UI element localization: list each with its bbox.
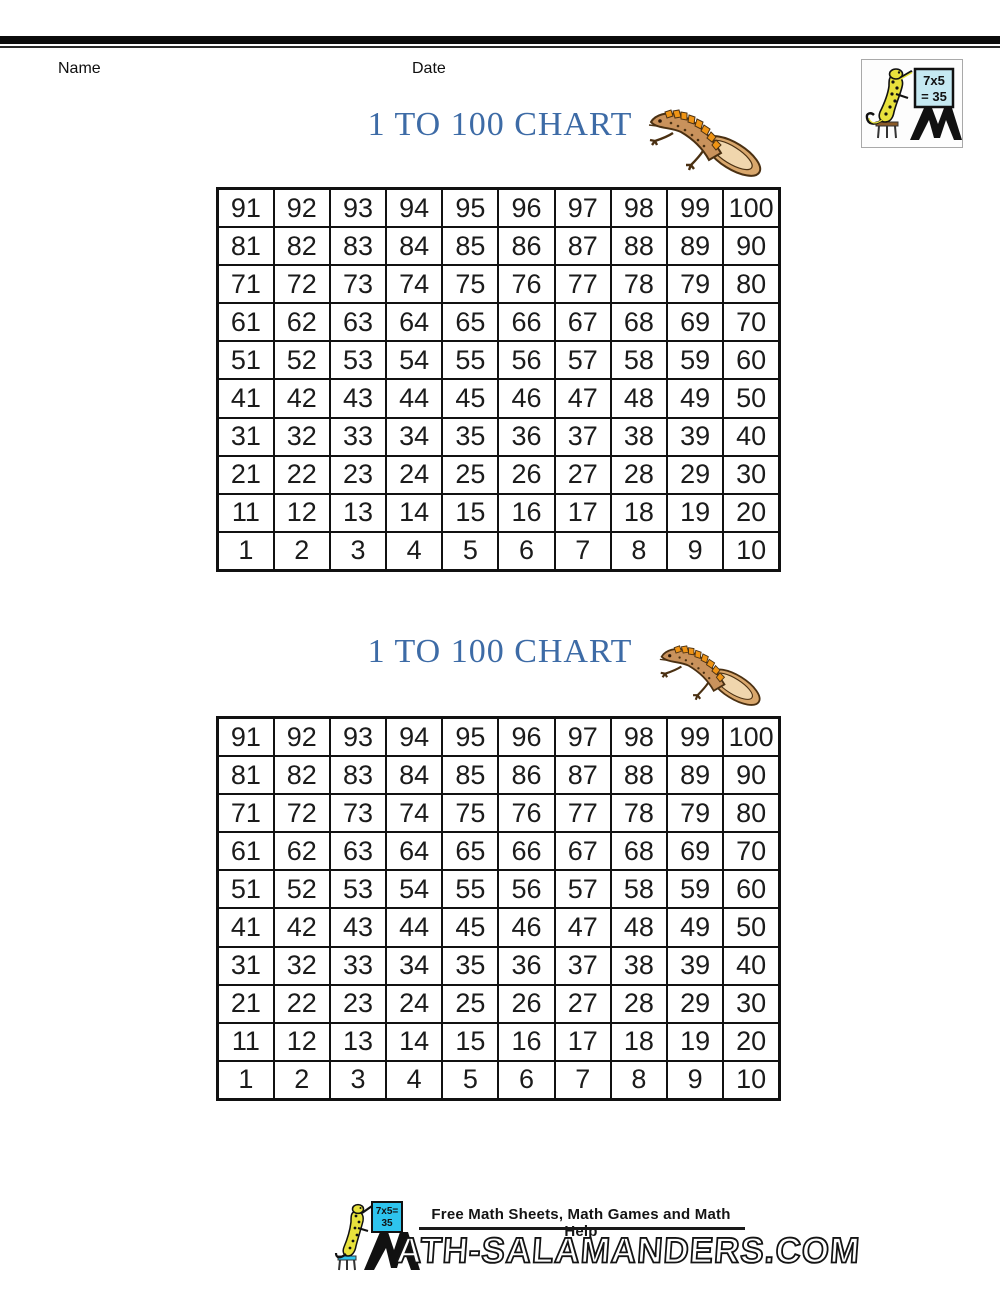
grid-cell: 26: [498, 456, 554, 494]
badge-board-line2: = 35: [921, 89, 947, 104]
grid-row: 12345678910: [218, 532, 780, 571]
grid-cell: 8: [611, 1061, 667, 1100]
grid-cell: 66: [498, 832, 554, 870]
grid-cell: 73: [330, 794, 386, 832]
grid-cell: 69: [667, 832, 723, 870]
grid-cell: 97: [555, 718, 611, 757]
grid-cell: 18: [611, 494, 667, 532]
grid-cell: 11: [218, 1023, 274, 1061]
grid-row: 51525354555657585960: [218, 870, 780, 908]
grid-cell: 30: [723, 985, 779, 1023]
grid-cell: 23: [330, 985, 386, 1023]
grid-cell: 13: [330, 494, 386, 532]
grid-cell: 45: [442, 908, 498, 946]
footer-board-line2: 35: [381, 1218, 393, 1229]
grid-cell: 90: [723, 756, 779, 794]
grid-cell: 71: [218, 265, 274, 303]
grid-cell: 100: [723, 718, 779, 757]
grid-cell: 96: [498, 718, 554, 757]
grid-cell: 44: [386, 908, 442, 946]
grid-cell: 28: [611, 456, 667, 494]
grid-cell: 19: [667, 1023, 723, 1061]
grid-cell: 4: [386, 1061, 442, 1100]
top-border-thin: [0, 46, 1000, 48]
grid-cell: 81: [218, 227, 274, 265]
grid-cell: 89: [667, 227, 723, 265]
grid-cell: 83: [330, 756, 386, 794]
grid-cell: 64: [386, 303, 442, 341]
grid-cell: 39: [667, 947, 723, 985]
grid-cell: 10: [723, 1061, 779, 1100]
grid-cell: 2: [274, 1061, 330, 1100]
grid-row: 71727374757677787980: [218, 265, 780, 303]
grid-cell: 78: [611, 265, 667, 303]
grid-cell: 48: [611, 379, 667, 417]
grid-cell: 86: [498, 227, 554, 265]
grid-row: 71727374757677787980: [218, 794, 780, 832]
grid-cell: 96: [498, 189, 554, 228]
grid-cell: 3: [330, 1061, 386, 1100]
grid-cell: 73: [330, 265, 386, 303]
grid-row: 11121314151617181920: [218, 494, 780, 532]
grid-cell: 45: [442, 379, 498, 417]
grid-cell: 6: [498, 1061, 554, 1100]
grid-cell: 62: [274, 303, 330, 341]
grid-cell: 56: [498, 341, 554, 379]
grid-cell: 81: [218, 756, 274, 794]
grid-cell: 75: [442, 794, 498, 832]
grid-cell: 16: [498, 1023, 554, 1061]
grid-cell: 31: [218, 418, 274, 456]
grid-cell: 1: [218, 532, 274, 571]
grid-cell: 62: [274, 832, 330, 870]
grid-cell: 89: [667, 756, 723, 794]
grid-row: 12345678910: [218, 1061, 780, 1100]
grid-cell: 79: [667, 794, 723, 832]
grid-cell: 44: [386, 379, 442, 417]
grid-cell: 95: [442, 189, 498, 228]
grid-cell: 48: [611, 908, 667, 946]
grid-cell: 16: [498, 494, 554, 532]
grid-row: 21222324252627282930: [218, 456, 780, 494]
grid-cell: 36: [498, 418, 554, 456]
grid-cell: 30: [723, 456, 779, 494]
grid-cell: 31: [218, 947, 274, 985]
grid-cell: 33: [330, 947, 386, 985]
grid-cell: 69: [667, 303, 723, 341]
grid-cell: 94: [386, 718, 442, 757]
grid-cell: 25: [442, 456, 498, 494]
grid-cell: 38: [611, 947, 667, 985]
grid-cell: 86: [498, 756, 554, 794]
grid-cell: 91: [218, 718, 274, 757]
grid-cell: 6: [498, 532, 554, 571]
grid-cell: 19: [667, 494, 723, 532]
grid-cell: 63: [330, 832, 386, 870]
grid-cell: 22: [274, 456, 330, 494]
grid-cell: 76: [498, 794, 554, 832]
grid-cell: 63: [330, 303, 386, 341]
grid-cell: 7: [555, 532, 611, 571]
grid-cell: 14: [386, 1023, 442, 1061]
grid-cell: 98: [611, 718, 667, 757]
grid-cell: 74: [386, 265, 442, 303]
grid-cell: 28: [611, 985, 667, 1023]
grid-cell: 78: [611, 794, 667, 832]
grid-cell: 90: [723, 227, 779, 265]
grid-cell: 21: [218, 456, 274, 494]
grid-cell: 60: [723, 341, 779, 379]
grid-cell: 23: [330, 456, 386, 494]
grid-cell: 68: [611, 832, 667, 870]
grid-cell: 29: [667, 456, 723, 494]
number-grid: 9192939495969798991008182838485868788899…: [216, 716, 781, 1101]
grid-cell: 12: [274, 1023, 330, 1061]
grid-cell: 41: [218, 908, 274, 946]
grid-cell: 27: [555, 985, 611, 1023]
grid-cell: 4: [386, 532, 442, 571]
grid-row: 11121314151617181920: [218, 1023, 780, 1061]
grid-cell: 2: [274, 532, 330, 571]
grid-cell: 64: [386, 832, 442, 870]
grid-cell: 22: [274, 985, 330, 1023]
grid-cell: 34: [386, 418, 442, 456]
grid-cell: 9: [667, 1061, 723, 1100]
worksheet-page: Name Date 7x5 = 35: [0, 0, 1000, 1294]
grid-cell: 100: [723, 189, 779, 228]
grid-cell: 65: [442, 832, 498, 870]
grid-cell: 8: [611, 532, 667, 571]
grid-cell: 95: [442, 718, 498, 757]
grid-cell: 37: [555, 418, 611, 456]
newt-illustration: [645, 99, 767, 177]
grid-cell: 7: [555, 1061, 611, 1100]
badge-board-line1: 7x5: [923, 73, 945, 88]
grid-cell: 42: [274, 379, 330, 417]
grid-cell: 92: [274, 718, 330, 757]
grid-cell: 17: [555, 494, 611, 532]
grid-cell: 66: [498, 303, 554, 341]
grid-cell: 99: [667, 718, 723, 757]
name-label: Name: [58, 60, 101, 78]
grid-cell: 72: [274, 794, 330, 832]
grid-cell: 36: [498, 947, 554, 985]
grid-cell: 84: [386, 756, 442, 794]
grid-cell: 53: [330, 870, 386, 908]
grid-row: 61626364656667686970: [218, 303, 780, 341]
grid-row: 51525354555657585960: [218, 341, 780, 379]
grid-cell: 60: [723, 870, 779, 908]
grid-cell: 5: [442, 1061, 498, 1100]
footer-board-line1: 7x5=: [376, 1206, 399, 1217]
grid-cell: 80: [723, 794, 779, 832]
grid-cell: 71: [218, 794, 274, 832]
grid-cell: 67: [555, 832, 611, 870]
grid-cell: 20: [723, 1023, 779, 1061]
grid-cell: 43: [330, 908, 386, 946]
top-border-thick: [0, 36, 1000, 44]
grid-cell: 59: [667, 870, 723, 908]
grid-cell: 57: [555, 870, 611, 908]
grid-cell: 40: [723, 947, 779, 985]
grid-cell: 21: [218, 985, 274, 1023]
chart-title: 1 TO 100 CHART: [0, 633, 1000, 671]
grid-cell: 92: [274, 189, 330, 228]
grid-cell: 34: [386, 947, 442, 985]
grid-cell: 87: [555, 227, 611, 265]
grid-cell: 47: [555, 908, 611, 946]
grid-cell: 88: [611, 756, 667, 794]
grid-cell: 54: [386, 870, 442, 908]
grid-cell: 29: [667, 985, 723, 1023]
grid-cell: 58: [611, 870, 667, 908]
grid-cell: 82: [274, 756, 330, 794]
date-label: Date: [412, 60, 446, 78]
grid-cell: 72: [274, 265, 330, 303]
grid-cell: 43: [330, 379, 386, 417]
grid-cell: 58: [611, 341, 667, 379]
grid-cell: 40: [723, 418, 779, 456]
grid-row: 919293949596979899100: [218, 718, 780, 757]
grid-cell: 52: [274, 341, 330, 379]
grid-cell: 51: [218, 341, 274, 379]
grid-row: 61626364656667686970: [218, 832, 780, 870]
grid-row: 21222324252627282930: [218, 985, 780, 1023]
grid-row: 31323334353637383940: [218, 418, 780, 456]
grid-cell: 61: [218, 832, 274, 870]
grid-cell: 61: [218, 303, 274, 341]
grid-cell: 3: [330, 532, 386, 571]
grid-cell: 87: [555, 756, 611, 794]
grid-cell: 83: [330, 227, 386, 265]
grid-cell: 94: [386, 189, 442, 228]
grid-cell: 99: [667, 189, 723, 228]
grid-row: 919293949596979899100: [218, 189, 780, 228]
grid-cell: 1: [218, 1061, 274, 1100]
grid-cell: 15: [442, 1023, 498, 1061]
grid-cell: 53: [330, 341, 386, 379]
grid-cell: 77: [555, 265, 611, 303]
grid-cell: 65: [442, 303, 498, 341]
grid-row: 81828384858687888990: [218, 756, 780, 794]
grid-cell: 27: [555, 456, 611, 494]
grid-cell: 49: [667, 908, 723, 946]
grid-cell: 26: [498, 985, 554, 1023]
grid-cell: 93: [330, 718, 386, 757]
grid-cell: 85: [442, 756, 498, 794]
grid-row: 81828384858687888990: [218, 227, 780, 265]
grid-cell: 24: [386, 456, 442, 494]
footer-brand-text: ATH-SALAMANDERS.COM: [395, 1231, 758, 1272]
grid-cell: 55: [442, 341, 498, 379]
grid-cell: 50: [723, 908, 779, 946]
grid-cell: 17: [555, 1023, 611, 1061]
grid-cell: 84: [386, 227, 442, 265]
grid-cell: 97: [555, 189, 611, 228]
grid-cell: 74: [386, 794, 442, 832]
footer-divider: [419, 1227, 745, 1230]
grid-cell: 35: [442, 947, 498, 985]
grid-cell: 75: [442, 265, 498, 303]
grid-row: 31323334353637383940: [218, 947, 780, 985]
grid-cell: 70: [723, 832, 779, 870]
grid-cell: 80: [723, 265, 779, 303]
grid-cell: 37: [555, 947, 611, 985]
grid-cell: 77: [555, 794, 611, 832]
grid-cell: 52: [274, 870, 330, 908]
grid-cell: 42: [274, 908, 330, 946]
grid-cell: 76: [498, 265, 554, 303]
grid-cell: 88: [611, 227, 667, 265]
grid-cell: 51: [218, 870, 274, 908]
grid-cell: 20: [723, 494, 779, 532]
grid-cell: 70: [723, 303, 779, 341]
grid-cell: 49: [667, 379, 723, 417]
grid-cell: 32: [274, 418, 330, 456]
grid-cell: 79: [667, 265, 723, 303]
grid-cell: 35: [442, 418, 498, 456]
grid-cell: 67: [555, 303, 611, 341]
grid-cell: 91: [218, 189, 274, 228]
chart-title: 1 TO 100 CHART: [0, 106, 1000, 144]
grid-cell: 14: [386, 494, 442, 532]
grid-cell: 15: [442, 494, 498, 532]
grid-cell: 57: [555, 341, 611, 379]
grid-cell: 13: [330, 1023, 386, 1061]
grid-cell: 54: [386, 341, 442, 379]
number-grid: 9192939495969798991008182838485868788899…: [216, 187, 781, 572]
grid-cell: 59: [667, 341, 723, 379]
grid-cell: 56: [498, 870, 554, 908]
grid-cell: 24: [386, 985, 442, 1023]
grid-cell: 39: [667, 418, 723, 456]
grid-cell: 85: [442, 227, 498, 265]
grid-cell: 32: [274, 947, 330, 985]
grid-cell: 11: [218, 494, 274, 532]
grid-cell: 93: [330, 189, 386, 228]
grid-cell: 46: [498, 379, 554, 417]
grid-cell: 9: [667, 532, 723, 571]
grid-cell: 5: [442, 532, 498, 571]
grid-cell: 38: [611, 418, 667, 456]
grid-cell: 33: [330, 418, 386, 456]
grid-cell: 18: [611, 1023, 667, 1061]
grid-cell: 55: [442, 870, 498, 908]
grid-cell: 25: [442, 985, 498, 1023]
grid-cell: 10: [723, 532, 779, 571]
grid-row: 41424344454647484950: [218, 908, 780, 946]
grid-cell: 68: [611, 303, 667, 341]
grid-cell: 82: [274, 227, 330, 265]
newt-illustration: [656, 636, 766, 706]
grid-cell: 41: [218, 379, 274, 417]
grid-row: 41424344454647484950: [218, 379, 780, 417]
grid-cell: 98: [611, 189, 667, 228]
grid-cell: 50: [723, 379, 779, 417]
grid-cell: 12: [274, 494, 330, 532]
grid-cell: 46: [498, 908, 554, 946]
grid-cell: 47: [555, 379, 611, 417]
